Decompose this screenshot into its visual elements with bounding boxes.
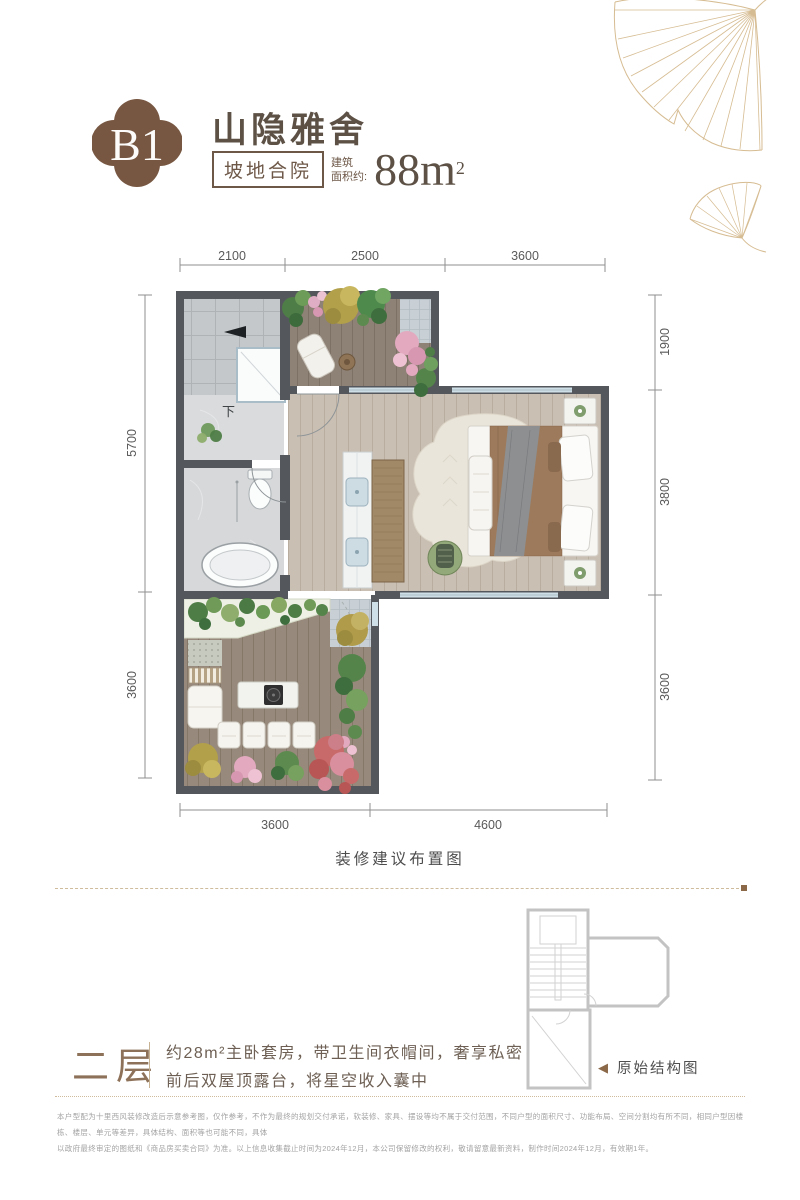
floor-description-line1: 约28m²主卧套房，带卫生间衣帽间，奢享私密 <box>166 1040 523 1068</box>
pillow <box>559 505 593 552</box>
pointer-icon: ◀ <box>598 1060 610 1076</box>
dim-bottom-2: 4600 <box>474 818 502 832</box>
disclaimer: 本户型配为十里西风装修改造后示意参考图，仅作参考，不作为最终的规划交付承诺，软装… <box>57 1109 749 1157</box>
floor-description-line2: 前后双屋顶露台，将星空收入囊中 <box>166 1068 523 1096</box>
divider-end-square <box>741 885 747 891</box>
unit-badge: B1 <box>92 98 182 188</box>
dim-right-3: 3600 <box>658 673 672 701</box>
toilet <box>249 479 271 509</box>
accent-pillow <box>548 442 561 472</box>
floor-plan-figure: 下 <box>0 240 800 860</box>
second-floor-label: 二层 <box>72 1036 160 1090</box>
area-label: 建筑 面积约: <box>331 156 367 184</box>
structure-label: ◀ 原始结构图 <box>598 1057 700 1078</box>
plot-type-tag: 坡地合院 <box>212 151 324 188</box>
ginkgo-leaf-large-icon <box>614 0 780 151</box>
area-block: 建筑 面积约: 88m2 <box>331 150 465 190</box>
dim-top-3: 3600 <box>511 249 539 263</box>
disclaimer-divider <box>55 1096 745 1097</box>
section-divider <box>55 888 739 889</box>
floor-label-divider <box>149 1042 150 1088</box>
dim-left-2: 3600 <box>125 671 139 699</box>
bench <box>469 456 492 530</box>
accent-pillow <box>548 522 561 552</box>
dim-left-1: 5700 <box>125 429 139 457</box>
area-value: 88m2 <box>374 150 465 190</box>
unit-badge-label: B1 <box>110 119 164 170</box>
page-title: 山隐雅舍 <box>212 102 368 153</box>
toilet-tank <box>248 470 272 479</box>
structure-label-text: 原始结构图 <box>617 1057 700 1078</box>
ginkgo-decoration <box>590 0 800 256</box>
plant-cluster-deck-top <box>282 286 391 327</box>
dim-right-1: 1900 <box>658 328 672 356</box>
striped-bench <box>189 668 221 683</box>
pillow <box>559 435 593 482</box>
dim-top-1: 2100 <box>218 249 246 263</box>
plan-caption: 装修建议布置图 <box>0 847 800 869</box>
pebble-patch <box>188 640 222 666</box>
dim-right-2: 3800 <box>658 478 672 506</box>
stairs-down-label: 下 <box>222 404 235 419</box>
floor-description: 约28m²主卧套房，带卫生间衣帽间，奢享私密 前后双屋顶露台，将星空收入囊中 <box>166 1040 523 1096</box>
disclaimer-line2: 以政府最终审定的图纸和《商品房买卖合同》为准。以上信息收集截止时间为2024年1… <box>57 1141 749 1157</box>
dim-top-2: 2500 <box>351 249 379 263</box>
area-superscript: 2 <box>456 158 465 178</box>
brochure-page: B1 山隐雅舍 坡地合院 建筑 面积约: 88m2 <box>0 0 800 1200</box>
dim-bottom-1: 3600 <box>261 818 289 832</box>
disclaimer-line1: 本户型配为十里西风装修改造后示意参考图，仅作参考，不作为最终的规划交付承诺，软装… <box>57 1109 749 1141</box>
